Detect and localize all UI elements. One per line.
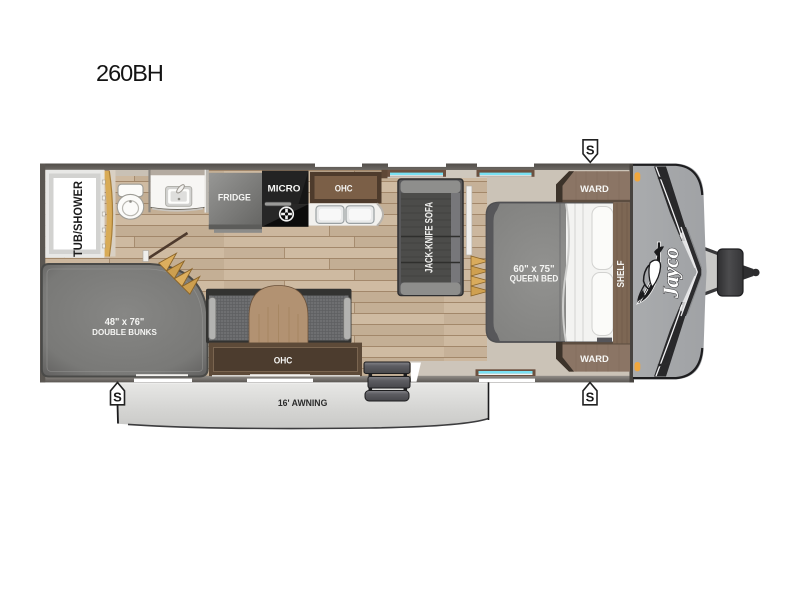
svg-text:JACK-KNIFE SOFA: JACK-KNIFE SOFA xyxy=(424,202,436,273)
svg-text:MICRO: MICRO xyxy=(268,184,301,194)
svg-text:WARD: WARD xyxy=(580,353,609,364)
svg-text:Jayco: Jayco xyxy=(658,247,683,299)
svg-text:WARD: WARD xyxy=(580,183,609,194)
svg-text:S: S xyxy=(113,390,122,405)
svg-text:S: S xyxy=(586,143,595,158)
svg-text:OHC: OHC xyxy=(274,356,293,366)
svg-text:FRIDGE: FRIDGE xyxy=(218,193,251,203)
svg-text:16' AWNING: 16' AWNING xyxy=(278,398,328,408)
svg-text:SHELF: SHELF xyxy=(616,261,627,288)
svg-text:DOUBLE BUNKS: DOUBLE BUNKS xyxy=(92,327,157,337)
svg-text:S: S xyxy=(586,390,595,405)
svg-text:QUEEN BED: QUEEN BED xyxy=(510,274,559,285)
svg-text:TUB/SHOWER: TUB/SHOWER xyxy=(73,180,85,257)
svg-text:260BH: 260BH xyxy=(96,60,163,86)
svg-text:OHC: OHC xyxy=(335,184,353,194)
